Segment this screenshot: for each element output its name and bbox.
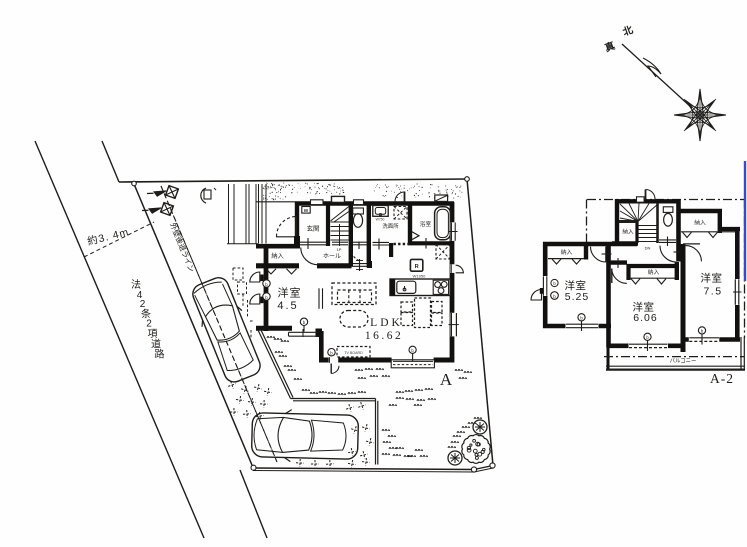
svg-text:A: A — [440, 370, 453, 389]
svg-text:洋室: 洋室 — [278, 286, 302, 300]
svg-text:7.5: 7.5 — [703, 286, 722, 298]
svg-text:項: 項 — [148, 328, 158, 340]
svg-text:6.06: 6.06 — [633, 312, 657, 324]
svg-text:納入: 納入 — [622, 228, 634, 236]
svg-text:洋室: 洋室 — [701, 272, 723, 285]
svg-text:W1950: W1950 — [413, 274, 426, 279]
svg-text:納入: 納入 — [694, 219, 706, 227]
svg-text:R: R — [415, 264, 419, 270]
svg-text:納入: 納入 — [561, 248, 573, 256]
svg-text:納入: 納入 — [271, 252, 283, 260]
svg-text:5.25: 5.25 — [565, 291, 589, 303]
svg-text:DN: DN — [645, 246, 651, 251]
svg-text:路: 路 — [155, 348, 165, 361]
svg-text:W750: W750 — [376, 217, 385, 221]
svg-text:2: 2 — [140, 299, 146, 310]
svg-text:洗面所: 洗面所 — [382, 222, 399, 230]
svg-text:1P: 1P — [337, 247, 342, 252]
svg-text:バルコニー: バルコニー — [670, 358, 697, 365]
svg-text:2: 2 — [146, 319, 152, 330]
svg-text:ホール: ホール — [323, 253, 341, 260]
svg-text:玄関: 玄関 — [307, 224, 320, 233]
svg-text:LDK: LDK — [370, 317, 403, 329]
svg-text:A-2: A-2 — [710, 371, 734, 386]
svg-text:M: M — [304, 208, 308, 213]
svg-text:16.62: 16.62 — [365, 330, 403, 342]
svg-text:TV BOARD: TV BOARD — [344, 351, 363, 355]
svg-text:4.5: 4.5 — [277, 300, 298, 312]
svg-text:納入: 納入 — [648, 268, 660, 276]
svg-text:浴室: 浴室 — [420, 220, 432, 228]
